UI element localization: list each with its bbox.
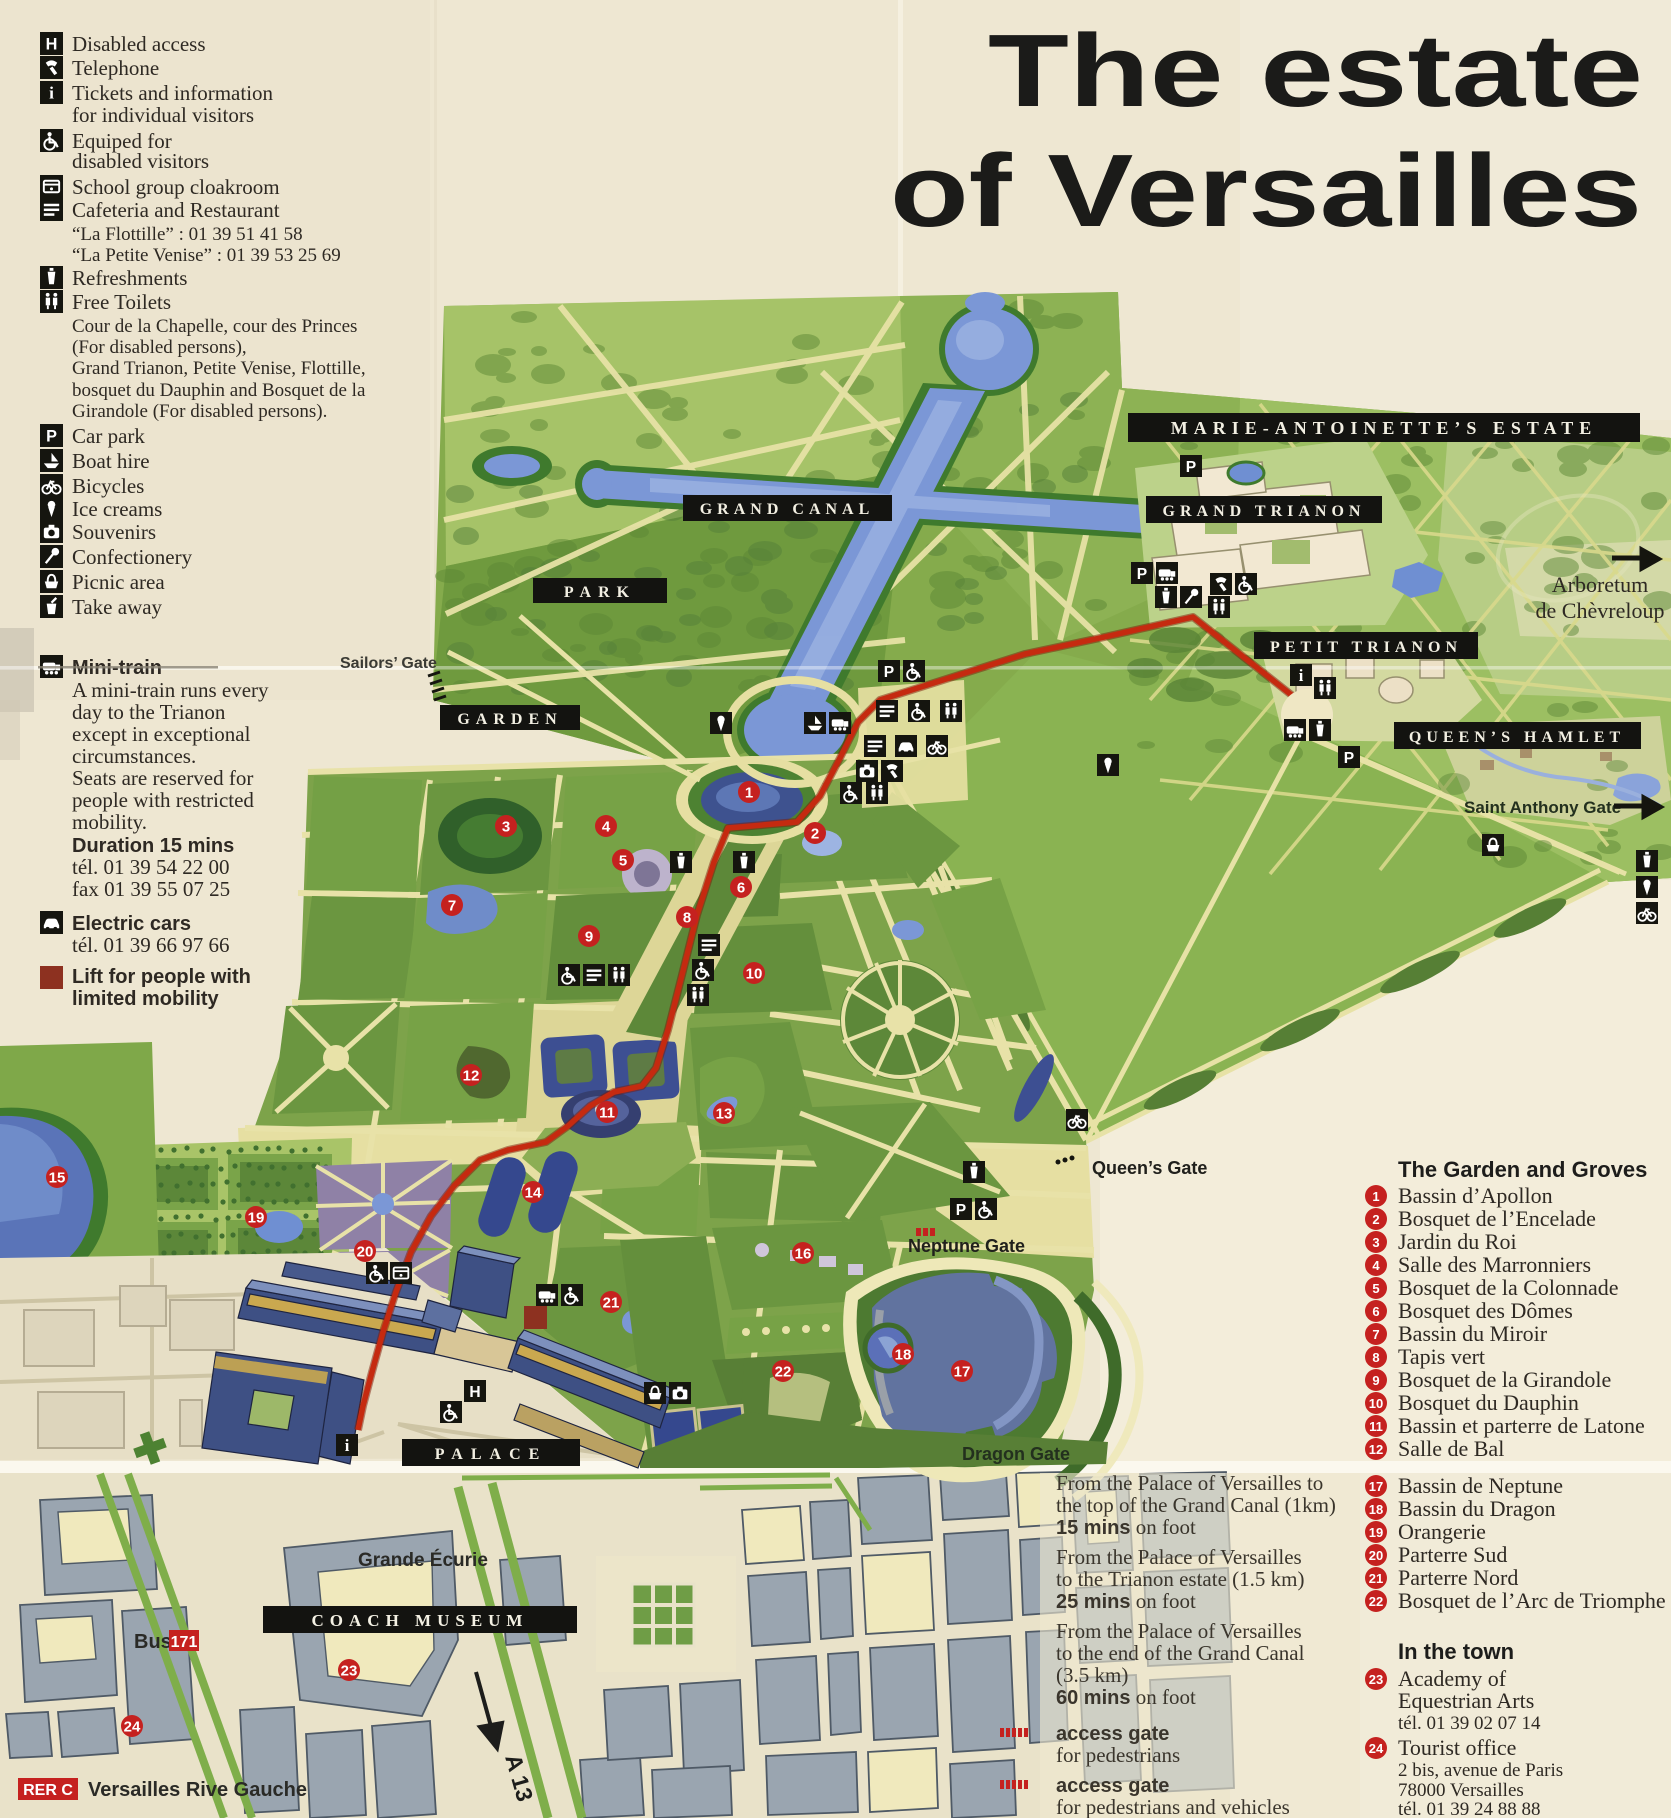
svg-text:Ice creams: Ice creams: [72, 497, 162, 521]
svg-text:(3.5 km): (3.5 km): [1056, 1663, 1128, 1687]
svg-text:1: 1: [745, 785, 753, 802]
svg-text:2 bis, avenue de Paris: 2 bis, avenue de Paris: [1398, 1760, 1563, 1781]
svg-text:GARDEN: GARDEN: [457, 711, 562, 728]
svg-text:21: 21: [603, 1295, 620, 1312]
svg-text:A mini-train runs every: A mini-train runs every: [72, 678, 269, 702]
svg-text:de Chèvreloup: de Chèvreloup: [1536, 598, 1665, 623]
svg-text:COACH MUSEUM: COACH MUSEUM: [312, 1611, 529, 1630]
svg-text:for pedestrians: for pedestrians: [1056, 1743, 1180, 1767]
svg-text:The estate: The estate: [988, 13, 1643, 128]
svg-text:Disabled access: Disabled access: [72, 32, 206, 56]
svg-text:Saint Anthony Gate: Saint Anthony Gate: [1464, 798, 1621, 817]
svg-text:3: 3: [502, 819, 510, 836]
svg-text:Queen’s Gate: Queen’s Gate: [1092, 1158, 1207, 1178]
svg-text:except in exceptional: except in exceptional: [72, 722, 251, 746]
svg-text:people with restricted: people with restricted: [72, 788, 254, 812]
svg-text:Bosquet de l’Arc de Triomphe: Bosquet de l’Arc de Triomphe: [1398, 1588, 1666, 1613]
svg-text:tél. 01 39 66 97 66: tél. 01 39 66 97 66: [72, 933, 230, 957]
svg-text:15: 15: [49, 1170, 66, 1187]
svg-text:Bosquet de la Girandole: Bosquet de la Girandole: [1398, 1367, 1611, 1392]
svg-text:8: 8: [1372, 1350, 1379, 1365]
svg-text:23: 23: [341, 1663, 358, 1680]
svg-text:Salle de Bal: Salle de Bal: [1398, 1436, 1504, 1461]
svg-text:“La Flottille” : 01 39 51 41 5: “La Flottille” : 01 39 51 41 58: [72, 224, 303, 245]
svg-text:2: 2: [811, 826, 819, 843]
svg-text:1: 1: [1372, 1189, 1379, 1204]
svg-text:Refreshments: Refreshments: [72, 266, 187, 290]
svg-text:access gate: access gate: [1056, 1775, 1169, 1797]
svg-text:Boat hire: Boat hire: [72, 449, 150, 473]
svg-text:4: 4: [602, 819, 611, 836]
svg-text:12: 12: [463, 1068, 480, 1085]
svg-text:22: 22: [775, 1364, 792, 1381]
svg-text:Confectionery: Confectionery: [72, 545, 193, 569]
svg-text:12: 12: [1369, 1442, 1383, 1457]
svg-text:Electric cars: Electric cars: [72, 913, 191, 935]
svg-text:Bassin du Dragon: Bassin du Dragon: [1398, 1496, 1556, 1521]
svg-text:23: 23: [1369, 1672, 1383, 1687]
svg-text:18: 18: [1369, 1502, 1383, 1517]
svg-text:20: 20: [1369, 1548, 1383, 1563]
svg-text:19: 19: [1369, 1525, 1383, 1540]
svg-text:5: 5: [619, 853, 627, 870]
svg-text:Tourist office: Tourist office: [1398, 1735, 1516, 1760]
svg-text:The Garden and Groves: The Garden and Groves: [1398, 1157, 1647, 1182]
svg-text:bosquet du Dauphin and Bosquet: bosquet du Dauphin and Bosquet de la: [72, 380, 366, 401]
svg-text:Take away: Take away: [72, 595, 163, 619]
svg-text:3: 3: [1372, 1235, 1379, 1250]
svg-text:6: 6: [737, 880, 745, 897]
svg-text:10: 10: [1369, 1396, 1383, 1411]
svg-text:10: 10: [746, 966, 763, 983]
svg-text:to the end of the Grand Canal: to the end of the Grand Canal: [1056, 1641, 1305, 1665]
svg-text:Bosquet de la Colonnade: Bosquet de la Colonnade: [1398, 1275, 1619, 1300]
svg-text:11: 11: [1369, 1419, 1383, 1434]
svg-text:22: 22: [1369, 1594, 1383, 1609]
svg-text:QUEEN’S HAMLET: QUEEN’S HAMLET: [1409, 729, 1625, 746]
svg-text:Parterre Sud: Parterre Sud: [1398, 1542, 1507, 1567]
svg-text:fax 01 39 55 07 25: fax 01 39 55 07 25: [72, 877, 230, 901]
svg-text:tél. 01 39 02 07 14: tél. 01 39 02 07 14: [1398, 1713, 1541, 1734]
svg-text:Sailors’ Gate: Sailors’ Gate: [340, 655, 437, 672]
svg-text:Duration 15 mins: Duration 15 mins: [72, 835, 234, 857]
svg-text:PALACE: PALACE: [435, 1446, 548, 1463]
svg-text:Picnic area: Picnic area: [72, 570, 165, 594]
svg-text:Bassin et parterre de Latone: Bassin et parterre de Latone: [1398, 1413, 1645, 1438]
svg-text:Grande Écurie: Grande Écurie: [358, 1549, 488, 1571]
svg-text:Bassin d’Apollon: Bassin d’Apollon: [1398, 1183, 1553, 1208]
svg-text:Souvenirs: Souvenirs: [72, 520, 156, 544]
svg-text:Bassin de Neptune: Bassin de Neptune: [1398, 1473, 1563, 1498]
svg-text:5: 5: [1372, 1281, 1379, 1296]
svg-text:In the town: In the town: [1398, 1639, 1514, 1664]
svg-text:of Versailles: of Versailles: [890, 133, 1642, 248]
svg-text:20: 20: [357, 1244, 374, 1261]
svg-text:13: 13: [716, 1106, 733, 1123]
svg-text:Neptune Gate: Neptune Gate: [908, 1236, 1025, 1256]
svg-text:GRAND TRIANON: GRAND TRIANON: [1163, 503, 1366, 520]
svg-text:Lift for people with: Lift for people with: [72, 966, 251, 988]
svg-text:17: 17: [954, 1364, 971, 1381]
svg-text:Equestrian Arts: Equestrian Arts: [1398, 1688, 1534, 1713]
svg-text:Bassin du Miroir: Bassin du Miroir: [1398, 1321, 1548, 1346]
svg-text:9: 9: [585, 929, 593, 946]
svg-text:to the Trianon estate (1.5 km): to the Trianon estate (1.5 km): [1056, 1567, 1304, 1591]
svg-text:9: 9: [1372, 1373, 1379, 1388]
svg-text:Bicycles: Bicycles: [72, 474, 144, 498]
svg-text:8: 8: [683, 910, 691, 927]
svg-text:PARK: PARK: [564, 584, 636, 601]
svg-text:Telephone: Telephone: [72, 56, 159, 80]
svg-text:Orangerie: Orangerie: [1398, 1519, 1486, 1544]
svg-text:RER C: RER C: [23, 1782, 73, 1799]
svg-text:Bosquet du Dauphin: Bosquet du Dauphin: [1398, 1390, 1579, 1415]
svg-text:access gate: access gate: [1056, 1723, 1169, 1745]
svg-text:Grand Trianon, Petite Venise,: Grand Trianon, Petite Venise, Flottille,: [72, 358, 366, 379]
svg-text:mobility.: mobility.: [72, 810, 147, 834]
svg-text:Dragon Gate: Dragon Gate: [962, 1444, 1070, 1464]
svg-text:From the Palace of Versailles: From the Palace of Versailles: [1056, 1619, 1302, 1643]
svg-text:MARIE-ANTOINETTE’S ESTATE: MARIE-ANTOINETTE’S ESTATE: [1171, 418, 1598, 438]
svg-text:15 mins on foot: 15 mins on foot: [1056, 1515, 1196, 1539]
svg-text:7: 7: [1372, 1327, 1379, 1342]
svg-text:for individual visitors: for individual visitors: [72, 103, 254, 127]
svg-text:Cour de la Chapelle, cour des: Cour de la Chapelle, cour des Princes: [72, 316, 357, 337]
svg-text:Salle des Marronniers: Salle des Marronniers: [1398, 1252, 1591, 1277]
svg-text:(For disabled persons),: (For disabled persons),: [72, 337, 247, 358]
svg-text:Parterre Nord: Parterre Nord: [1398, 1565, 1518, 1590]
svg-text:disabled visitors: disabled visitors: [72, 149, 209, 173]
svg-text:Cafeteria and Restaurant: Cafeteria and Restaurant: [72, 198, 280, 222]
svg-text:From the Palace of Versailles: From the Palace of Versailles to: [1056, 1471, 1323, 1495]
svg-text:11: 11: [599, 1105, 615, 1122]
svg-text:Tapis vert: Tapis vert: [1398, 1344, 1485, 1369]
svg-text:18: 18: [895, 1347, 912, 1364]
svg-text:limited mobility: limited mobility: [72, 988, 220, 1010]
svg-text:Car park: Car park: [72, 424, 145, 448]
svg-text:Versailles Rive Gauche: Versailles Rive Gauche: [88, 1779, 307, 1801]
svg-text:24: 24: [124, 1719, 141, 1736]
svg-text:circumstances.: circumstances.: [72, 744, 196, 768]
svg-text:PETIT TRIANON: PETIT TRIANON: [1270, 639, 1462, 656]
svg-text:Bus: Bus: [134, 1631, 172, 1653]
svg-text:Arboretum: Arboretum: [1552, 572, 1649, 597]
svg-text:Bosquet des Dômes: Bosquet des Dômes: [1398, 1298, 1573, 1323]
svg-text:24: 24: [1369, 1741, 1384, 1756]
svg-text:Free Toilets: Free Toilets: [72, 290, 171, 314]
svg-text:tél. 01 39 24 88 88: tél. 01 39 24 88 88: [1398, 1799, 1541, 1818]
svg-text:14: 14: [525, 1185, 542, 1202]
svg-text:2: 2: [1372, 1212, 1379, 1227]
svg-text:60 mins on foot: 60 mins on foot: [1056, 1685, 1196, 1709]
svg-text:19: 19: [248, 1210, 265, 1227]
svg-text:25 mins on foot: 25 mins on foot: [1056, 1589, 1196, 1613]
svg-text:17: 17: [1369, 1479, 1383, 1494]
svg-text:From the Palace of Versailles: From the Palace of Versailles: [1056, 1545, 1302, 1569]
svg-text:Bosquet de l’Encelade: Bosquet de l’Encelade: [1398, 1206, 1596, 1231]
svg-text:Jardin du Roi: Jardin du Roi: [1398, 1229, 1517, 1254]
svg-text:“La Petite Venise” : 01 39 53: “La Petite Venise” : 01 39 53 25 69: [72, 245, 341, 266]
svg-text:Girandole (For disabled person: Girandole (For disabled persons).: [72, 401, 327, 422]
svg-text:Tickets and information: Tickets and information: [72, 81, 274, 105]
svg-text:the top of the Grand Canal (1k: the top of the Grand Canal (1km): [1056, 1493, 1336, 1517]
svg-text:171: 171: [171, 1634, 198, 1651]
svg-text:78000 Versailles: 78000 Versailles: [1398, 1780, 1524, 1801]
svg-text:Seats are reserved for: Seats are reserved for: [72, 766, 253, 790]
svg-text:tél. 01 39 54 22 00: tél. 01 39 54 22 00: [72, 855, 230, 879]
svg-text:16: 16: [795, 1246, 812, 1263]
svg-text:day to the Trianon: day to the Trianon: [72, 700, 226, 724]
svg-text:7: 7: [448, 898, 456, 915]
svg-text:21: 21: [1369, 1571, 1383, 1586]
svg-text:4: 4: [1372, 1258, 1380, 1273]
svg-text:GRAND CANAL: GRAND CANAL: [700, 501, 875, 518]
svg-text:6: 6: [1372, 1304, 1379, 1319]
svg-text:for pedestrians and vehicles: for pedestrians and vehicles: [1056, 1795, 1290, 1818]
svg-text:School group cloakroom: School group cloakroom: [72, 175, 280, 199]
